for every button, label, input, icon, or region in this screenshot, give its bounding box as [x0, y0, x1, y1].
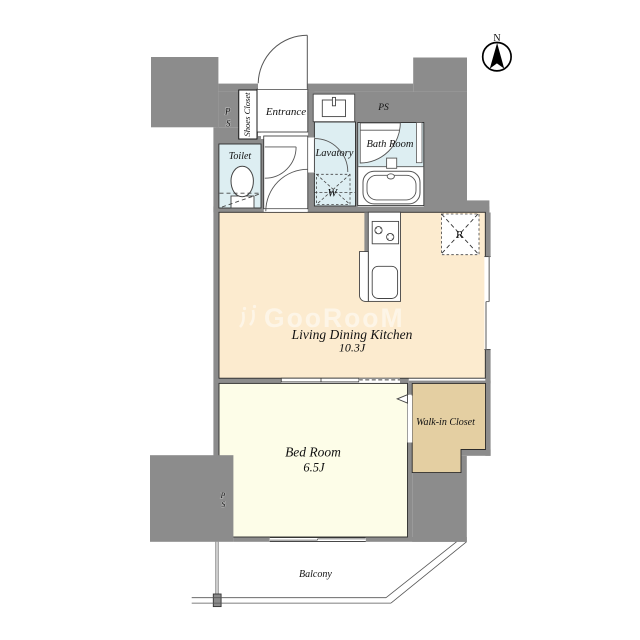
svg-text:P: P: [224, 107, 231, 117]
svg-text:Lavatory: Lavatory: [314, 148, 353, 159]
svg-text:10.3J: 10.3J: [339, 341, 366, 355]
svg-text:6.5J: 6.5J: [303, 461, 326, 475]
svg-text:P: P: [220, 491, 226, 500]
svg-text:Entrance: Entrance: [265, 106, 306, 118]
svg-text:Walk-in Closet: Walk-in Closet: [416, 417, 475, 428]
svg-text:Toilet: Toilet: [229, 151, 252, 162]
svg-text:W: W: [328, 188, 339, 200]
svg-text:S: S: [226, 119, 231, 129]
svg-text:Shoes Closet: Shoes Closet: [242, 92, 252, 137]
svg-text:Bath Room: Bath Room: [367, 139, 414, 150]
svg-text:R: R: [456, 229, 464, 241]
svg-text:Bed Room: Bed Room: [285, 445, 341, 460]
svg-text:S: S: [221, 500, 225, 509]
svg-text:Balcony: Balcony: [299, 569, 332, 580]
svg-text:N: N: [493, 33, 500, 44]
svg-text:PS: PS: [377, 103, 389, 113]
